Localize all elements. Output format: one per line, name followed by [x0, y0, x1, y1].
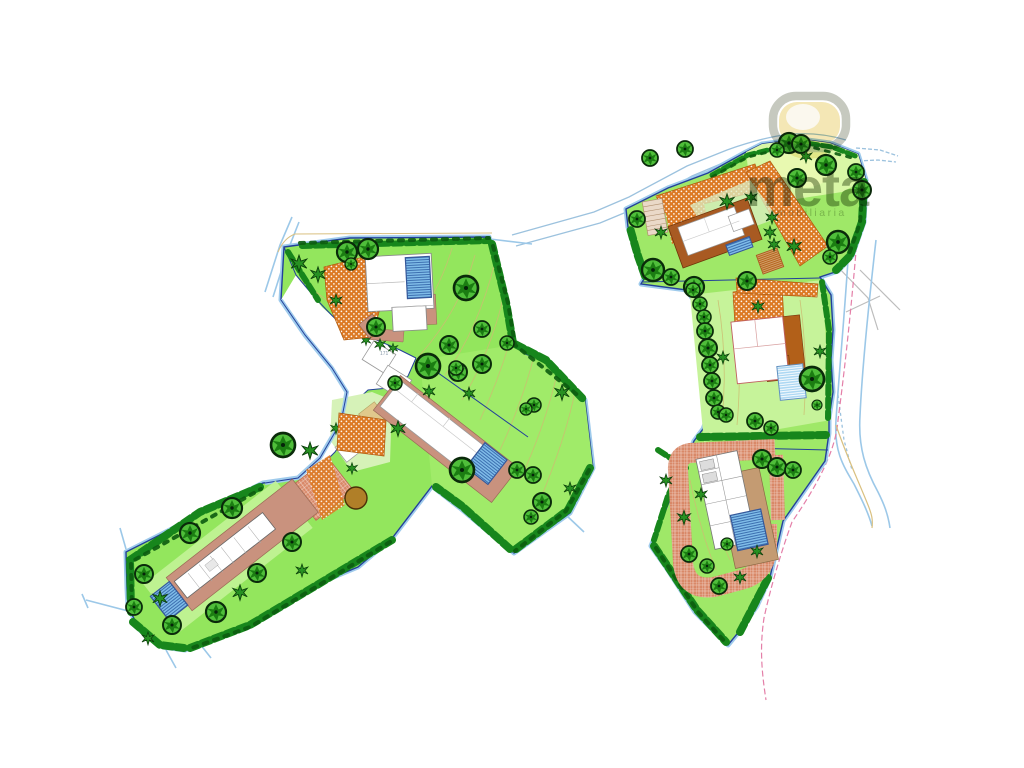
svg-text:171: 171 [380, 351, 389, 357]
svg-text:imobiliaria: imobiliaria [772, 207, 847, 219]
